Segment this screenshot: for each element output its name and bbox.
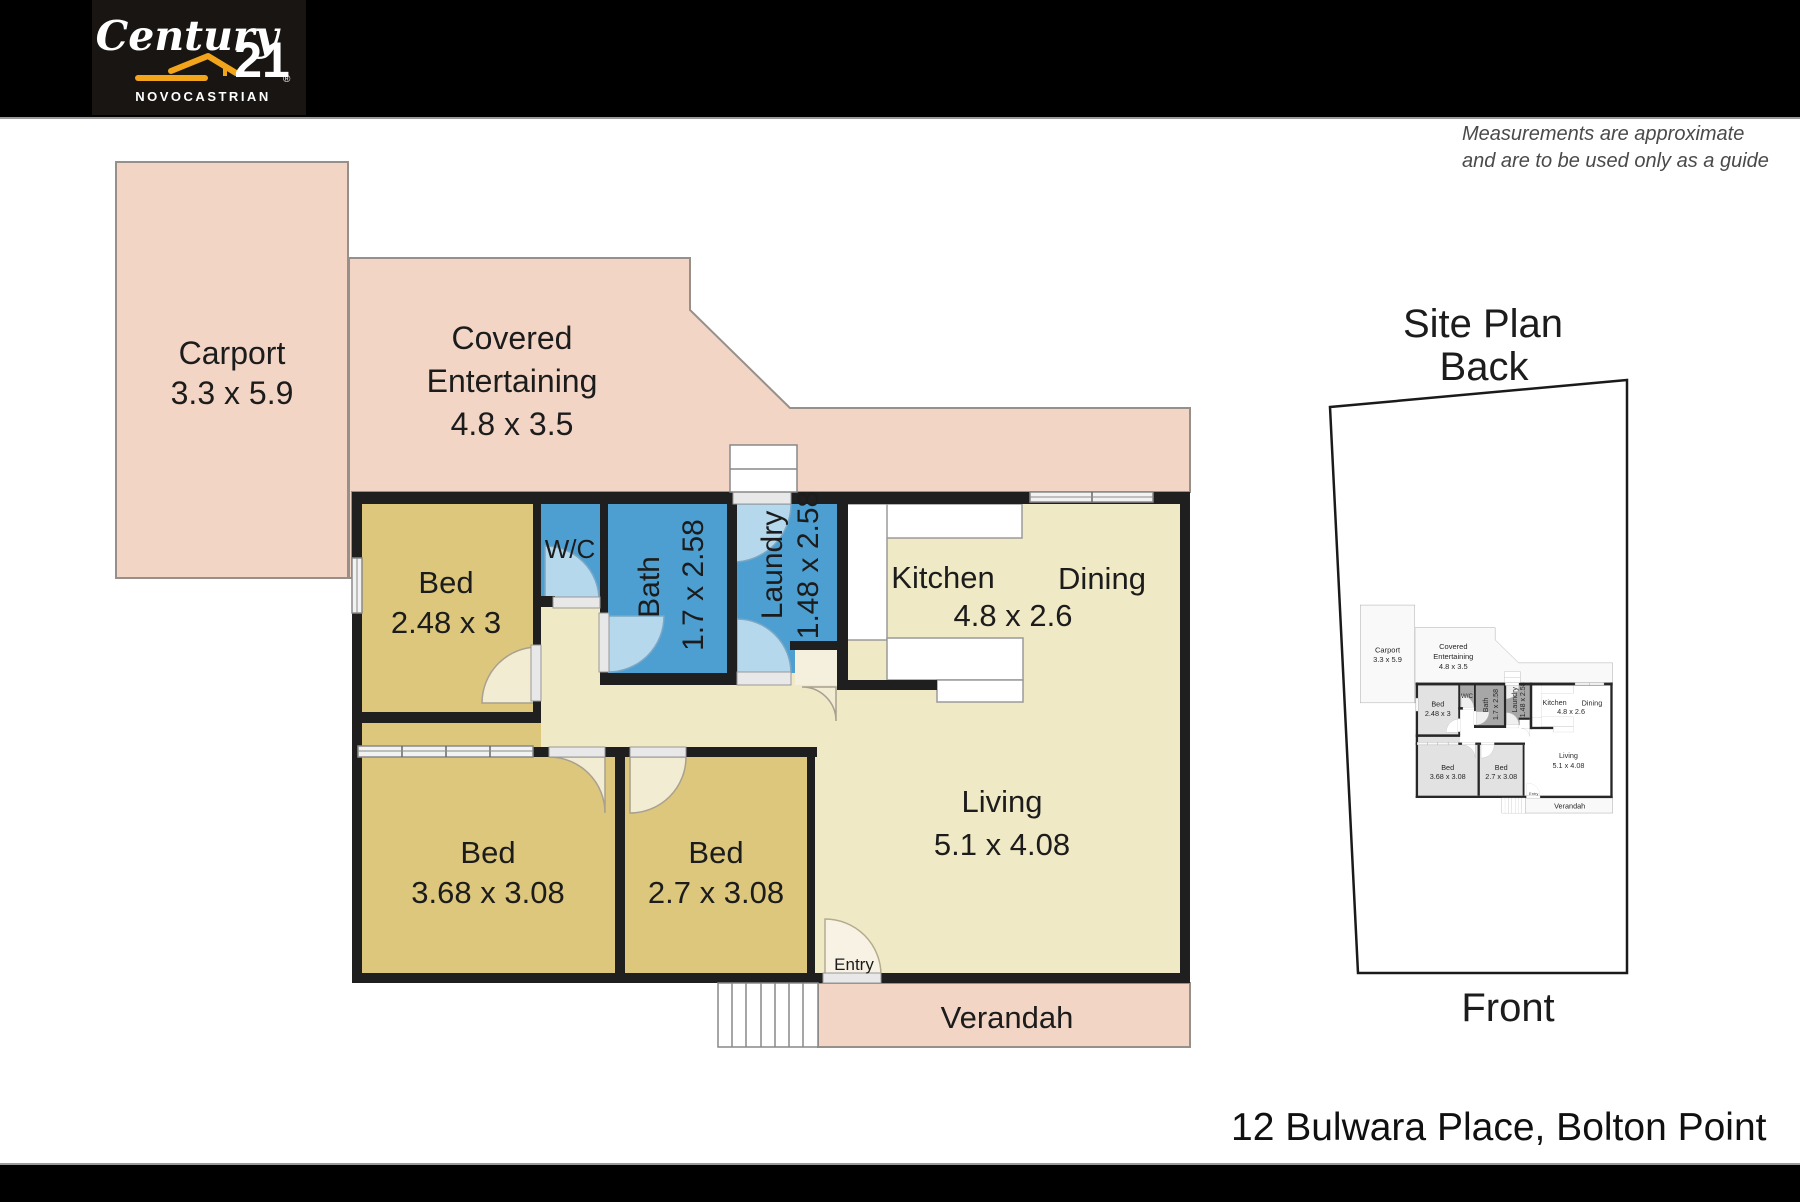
disclaimer-line-1: Measurements are approximate [1462,121,1769,148]
site-plan-front-label: Front [1461,986,1554,1030]
floor-plan-canvas: Carport 3.3 x 5.9 Covered Entertaining 4… [0,0,1800,1200]
disclaimer-line-2: and are to be used only as a guide [1462,148,1769,175]
century21-logo: Century 21 ® NOVOCASTRIAN [92,0,306,115]
logo-registered-mark: ® [283,74,291,85]
logo-graphic: Century 21 ® NOVOCASTRIAN [92,0,306,115]
disclaimer-note: Measurements are approximate and are to … [1462,121,1769,175]
logo-subtitle: NOVOCASTRIAN [135,89,270,104]
site-plan-title: Site Plan [1403,302,1563,346]
property-address: 12 Bulwara Place, Bolton Point [1231,1106,1751,1150]
footer-bar [0,1163,1800,1202]
main-floorplan [116,162,1190,1047]
floorplan-flyer: { "header": { "logo": { "script": "Centu… [0,0,1800,1200]
site-plan-back-label: Back [1440,345,1530,389]
logo-number-text: 21 [234,32,290,88]
